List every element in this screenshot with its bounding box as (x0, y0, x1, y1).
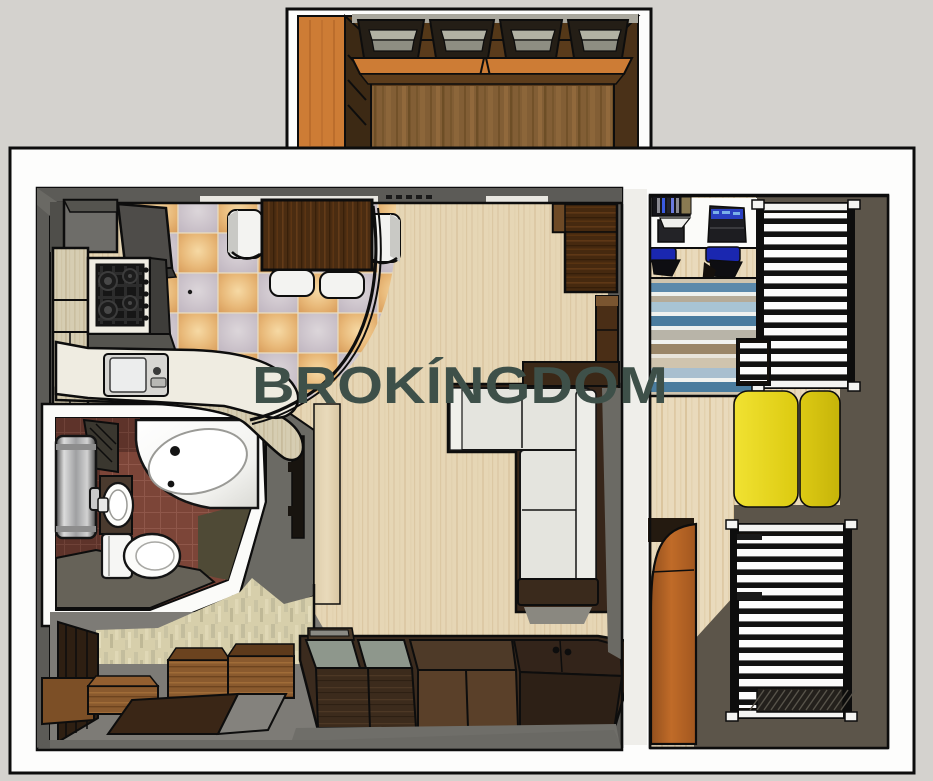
svg-text:BROKÍNGDOM: BROKÍNGDOM (252, 357, 668, 415)
